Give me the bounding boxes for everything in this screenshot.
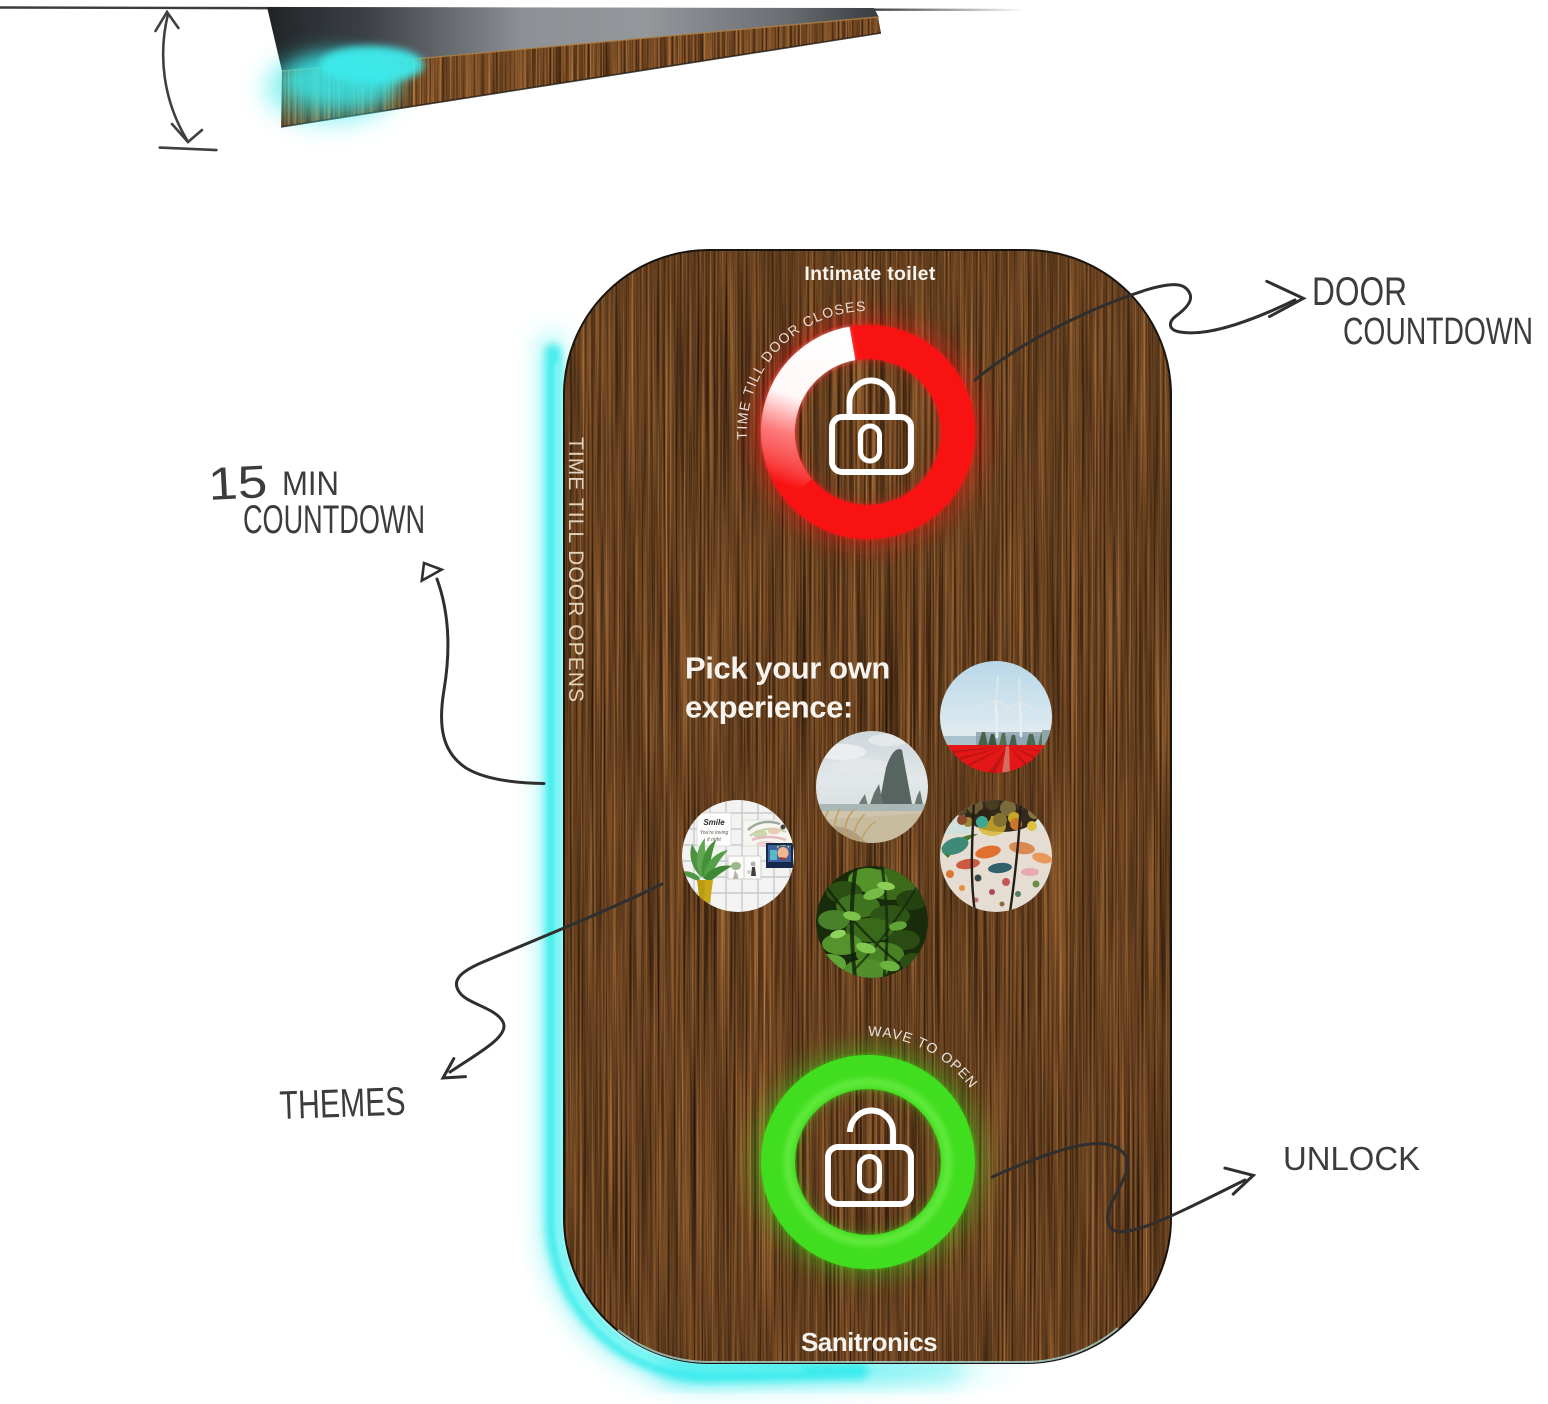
svg-text:You're loving: You're loving	[700, 830, 729, 836]
svg-text:COUNTDOWN: COUNTDOWN	[1343, 311, 1533, 353]
svg-text:THEMES: THEMES	[279, 1080, 406, 1128]
svg-text:experience:: experience:	[685, 690, 853, 725]
svg-text:COUNTDOWN: COUNTDOWN	[243, 498, 425, 542]
svg-text:Intimate toilet: Intimate toilet	[804, 263, 935, 285]
svg-text:DOOR: DOOR	[1312, 270, 1407, 314]
svg-text:UNLOCK: UNLOCK	[1283, 1140, 1420, 1177]
svg-text:TIME TILL DOOR OPENS: TIME TILL DOOR OPENS	[564, 437, 587, 705]
svg-text:Pick your own: Pick your own	[685, 651, 890, 686]
svg-text:Sanitronics: Sanitronics	[801, 1327, 937, 1357]
svg-text:Smile: Smile	[703, 818, 725, 827]
